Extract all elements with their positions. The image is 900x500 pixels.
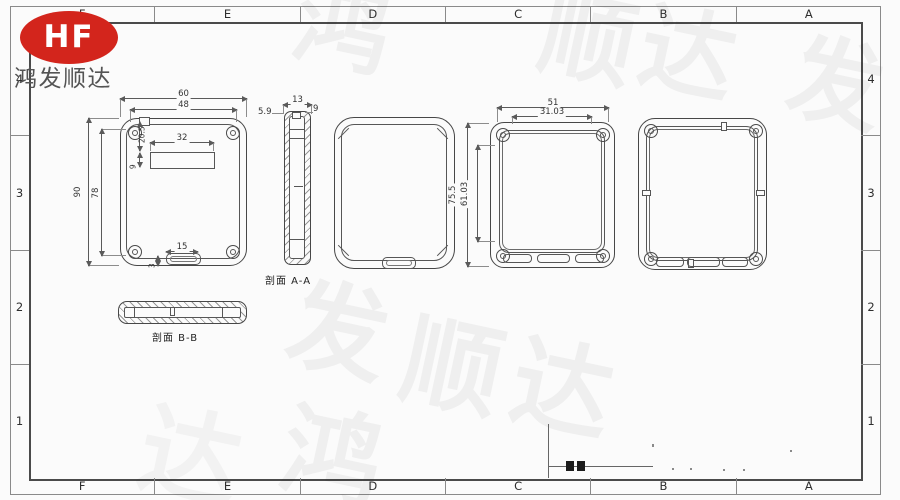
grid-cell: C [445,478,590,494]
grid-cell: A [736,6,881,22]
extension-line [102,255,126,256]
vent-slot [575,254,604,263]
dim-text: 32 [175,134,190,143]
grid-cell: D [300,6,445,22]
vent-slot [503,254,532,263]
dim-text: 31.03 [538,108,566,117]
dim-text: 9 [130,164,138,169]
dim-text: 60 [176,90,191,99]
illegible-stamp-mark [566,461,574,471]
leader-line [272,113,283,114]
logo-monogram: HF [43,22,94,53]
screw-hole [749,252,763,266]
side-view [334,117,455,269]
vent-slot [722,257,748,267]
dim-width-outer: 60 [120,98,247,99]
bottom-tab-inner [170,256,197,262]
grid-cell: 4 [861,22,881,135]
section-line [289,129,304,130]
grid-ruler-bottom: F E D C B A [10,478,881,494]
speck [790,450,792,452]
section-line [289,239,304,240]
section-line [134,307,135,318]
clip-mark [756,190,765,196]
grid-cell: B [590,478,735,494]
grid-cell: 1 [861,364,881,478]
watermark-char: 顺 [393,309,512,428]
extension-line [468,123,489,124]
construction-line [548,424,549,478]
grid-cell: 2 [861,250,881,364]
dim-text: 61.03 [461,179,470,207]
company-logo: HF [20,11,118,64]
grid-ruler-top: F E D C B A [10,6,881,22]
screw-hole [644,124,658,138]
dim-height-outer: 90 [88,118,89,266]
bottom-tab-inner [386,260,412,266]
dim-tab-height-line [157,256,158,266]
vent-slot [656,257,684,267]
screw-hole [749,124,763,138]
screw-hole [128,245,142,259]
dim-height-inner: 78 [101,129,102,256]
grid-cell: D [300,478,445,494]
construction-line [548,466,653,467]
grid-ruler-right: 4 3 2 1 [861,22,881,478]
back-view-inner-line [126,124,240,259]
dim-front-width-inner: 31.03 [512,116,592,117]
section-top-step [292,112,301,119]
extension-line [246,100,247,117]
speck [723,469,725,471]
watermark-char: 达 [503,331,622,450]
dim-tab-width: 15 [166,251,198,252]
dim-slot-height-line [139,153,140,167]
label-recess [150,152,215,169]
section-b-label: 剖面 B-B [152,329,198,344]
extension-line [478,241,495,242]
dim-text: 5.9 [258,108,272,117]
speck [743,469,745,471]
section-a-view [284,111,311,265]
screw-hole [226,245,240,259]
grid-cell: 3 [10,135,29,249]
extension-line [478,145,495,146]
dim-text: 75.5 [449,184,458,207]
side-view-inner-line [341,124,447,261]
grid-cell: F [10,478,154,494]
grid-cell: A [736,478,881,494]
extension-line [468,266,489,267]
section-b-view [118,301,247,324]
watermark-char: 发 [279,273,398,392]
dim-text: 15 [175,243,190,252]
extension-line [102,129,126,130]
clip-mark [642,190,651,196]
extension-line [120,100,121,117]
section-post [170,307,175,316]
section-a-label: 剖面 A-A [265,272,311,287]
dim-section-width: 13 [283,104,312,105]
dim-width-inner: 48 [130,109,237,110]
dim-text: 90 [74,185,83,200]
dim-text: 3 [149,263,157,268]
grid-cell: E [154,478,299,494]
section-line [289,138,304,139]
grid-cell: 2 [10,250,29,364]
dim-text: 20.5 [139,126,147,143]
front-open-wall-line [502,133,602,250]
dim-text: 9 [313,105,318,114]
screw-hole [226,126,240,140]
speck [672,468,674,470]
dim-text: 78 [92,185,101,200]
section-line [294,186,303,187]
section-b-cavity [124,307,241,318]
lid-view-wall-line [649,129,755,258]
lid-view [638,118,767,270]
section-line [222,307,223,318]
extension-line [89,265,119,266]
grid-cell: B [590,6,735,22]
vent-slot [537,254,570,263]
company-name: 鸿发顺达 [14,59,112,93]
dim-text: 48 [176,101,191,110]
vent-slot [687,257,720,267]
clip-mark [721,122,727,131]
dim-front-height-inner: 61.03 [477,145,478,242]
screw-hole [596,128,610,142]
drawing-sheet: 鸿 顺 达 发 发 顺 达 鸿 达 F E D C B A F E D C B … [0,0,900,500]
speck [690,468,692,470]
front-open-view [490,122,615,268]
dim-slot-width: 32 [150,142,214,143]
dim-text: 13 [290,96,305,105]
grid-cell: E [154,6,299,22]
extension-line [89,118,119,119]
illegible-stamp-mark [577,461,585,471]
screw-hole [496,128,510,142]
grid-cell: 3 [861,135,881,249]
grid-cell: C [445,6,590,22]
grid-cell: 1 [10,364,29,478]
speck [652,444,654,447]
